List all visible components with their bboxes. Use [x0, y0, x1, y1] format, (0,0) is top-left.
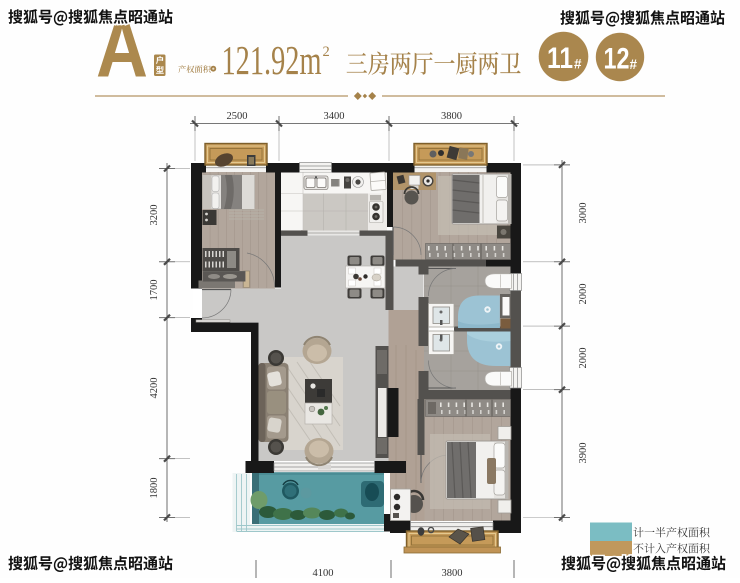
svg-text:3400: 3400 — [324, 111, 345, 122]
svg-text:1800: 1800 — [149, 478, 160, 499]
svg-text:11: 11 — [547, 42, 573, 75]
svg-text:3800: 3800 — [441, 111, 462, 122]
svg-text:12: 12 — [604, 43, 630, 76]
svg-text:3000: 3000 — [578, 203, 589, 224]
svg-text:1700: 1700 — [149, 280, 160, 301]
svg-text:2: 2 — [323, 44, 330, 60]
svg-text:3200: 3200 — [149, 205, 160, 226]
svg-text:2000: 2000 — [578, 284, 589, 305]
svg-text:#: # — [574, 57, 582, 72]
svg-text:3800: 3800 — [442, 568, 463, 578]
svg-text:3900: 3900 — [578, 443, 589, 464]
svg-text:#: # — [630, 57, 638, 72]
svg-text:4200: 4200 — [149, 378, 160, 399]
svg-text:2000: 2000 — [578, 348, 589, 369]
svg-text:2500: 2500 — [227, 111, 248, 122]
svg-text:4100: 4100 — [313, 568, 334, 578]
svg-text:121.92m: 121.92m — [222, 37, 322, 83]
